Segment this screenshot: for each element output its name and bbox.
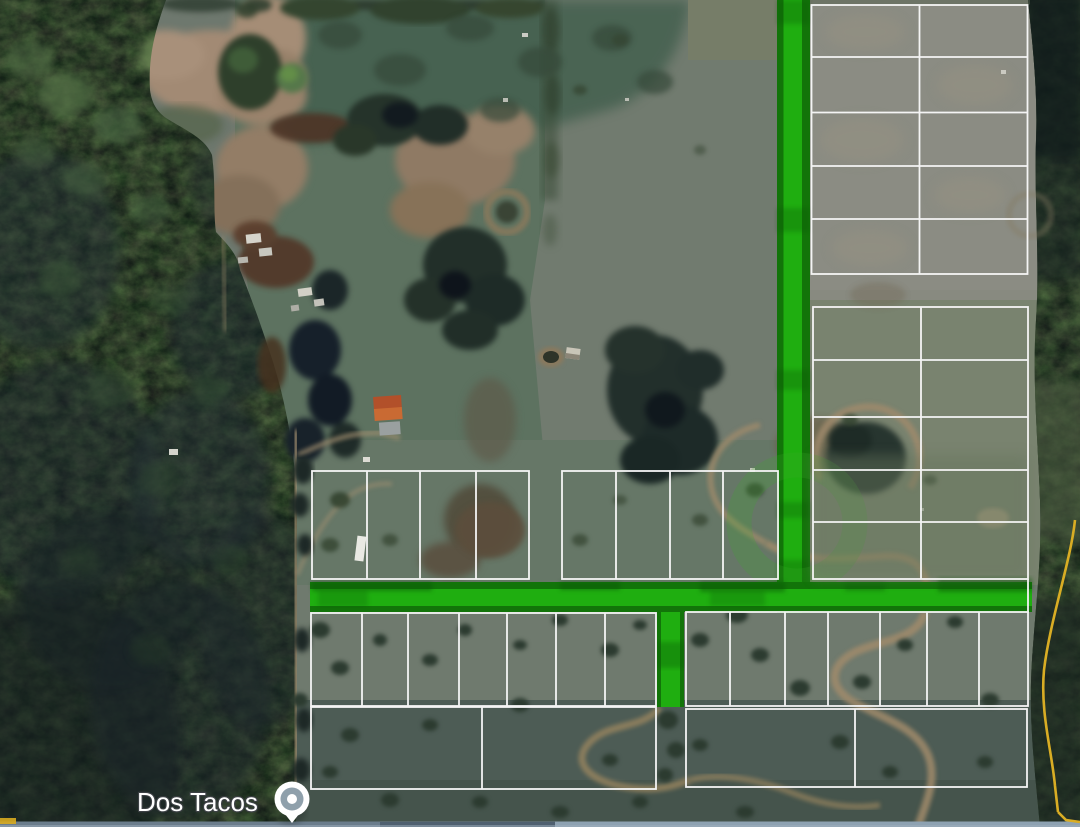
svg-text:Dos Tacos: Dos Tacos — [137, 787, 258, 817]
